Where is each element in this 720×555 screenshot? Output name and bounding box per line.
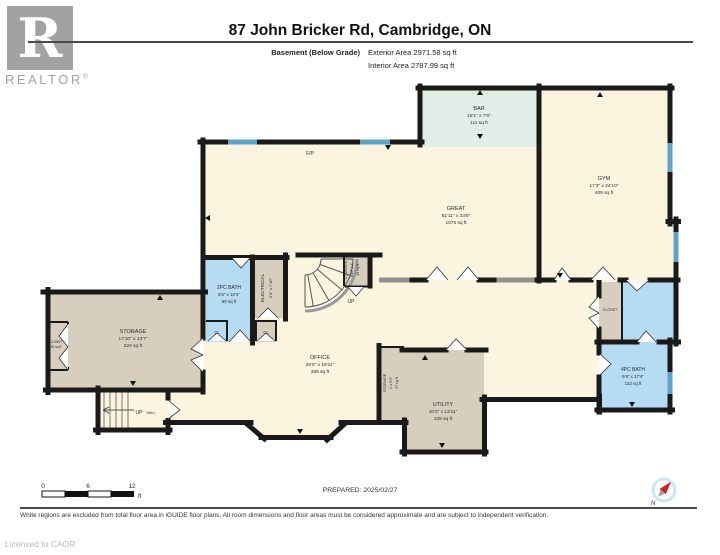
- bar-name: BAR: [473, 106, 484, 112]
- bath2-name: 2PC BATH: [217, 285, 241, 291]
- office-dims: 26'5" x 18'11": [306, 362, 335, 368]
- closet-right-name: CLOSET: [603, 308, 618, 312]
- cl2-label: CL: [263, 330, 269, 335]
- electrical-name: ELECTRICAL: [260, 273, 265, 302]
- storage-stairs-name: STORAGE: [344, 260, 348, 279]
- disclaimer-text: White regions are excluded from total fl…: [20, 512, 620, 519]
- storage-main-dims: 17'10" x 13'7": [119, 336, 148, 342]
- bath4-area: 132 sq ft: [625, 381, 643, 386]
- storage-small-dims: 4' x 9'3": [389, 376, 393, 389]
- storage-stairs-area: 19 sq ft: [356, 264, 360, 276]
- bath2-dims: 6'5" x 10'4": [218, 292, 240, 297]
- utility-area: 128 sq ft: [434, 416, 453, 422]
- room-closet-right: [599, 282, 622, 342]
- closet-left-name: CLOSET: [50, 340, 63, 344]
- floor-plan-page: R REALTOR® 87 John Bricker Rd, Cambridge…: [0, 0, 720, 555]
- bath4-name: 4PC BATH: [621, 367, 645, 373]
- scale-unit: ft: [138, 494, 142, 500]
- fireplace-label: F/P: [306, 151, 314, 157]
- office-area: 355 sq ft: [311, 369, 330, 375]
- up-hall-hall: HALL: [147, 411, 156, 415]
- utility-name: UTILITY: [433, 402, 454, 408]
- floor-plan-drawing: F/P BAR 15'1" x 7'6" 111 sq ft GYM 17'3"…: [0, 0, 720, 555]
- storage-small-name: STORAGE: [383, 373, 387, 392]
- great-dims: 51'11" x 33'8": [442, 213, 471, 219]
- room-utility: [404, 350, 484, 452]
- storage-stairs-dims: 9'10" x 4': [350, 262, 354, 277]
- bath2-area: 59 sq ft: [222, 299, 237, 304]
- bar-area: 111 sq ft: [470, 120, 488, 126]
- office-name: OFFICE: [310, 355, 330, 361]
- storage-main-area: 224 sq ft: [124, 343, 143, 349]
- great-area: 1075 sq ft: [445, 220, 467, 226]
- gym-dims: 17'3" x 24'10": [590, 183, 619, 189]
- storage-main-name: STORAGE: [120, 329, 147, 335]
- stairs-up-label: UP: [348, 299, 356, 305]
- bar-dims: 15'1" x 7'6": [467, 113, 491, 119]
- electrical-dims: 6'4" x 7'10": [268, 278, 273, 298]
- bath4-dims: 9'8" x 17'4": [622, 374, 644, 379]
- room-bath4-upper: [622, 282, 676, 342]
- license-text: Licensed to CAOR: [5, 539, 75, 549]
- compass-north-label: N: [651, 501, 656, 507]
- storage-small-area: 37 sq ft: [395, 377, 399, 389]
- up-hall-up: UP: [136, 410, 144, 416]
- cl1-label: CL: [214, 330, 220, 335]
- utility-dims: 10'2" x 13'11": [429, 409, 458, 415]
- prepared-date: PREPARED: 2025/02/27: [0, 487, 720, 494]
- great-name: GREAT: [447, 206, 466, 212]
- gym-area: 409 sq ft: [595, 190, 614, 196]
- gym-name: GYM: [598, 176, 611, 182]
- closet-left-area: 20 sq ft: [51, 345, 62, 349]
